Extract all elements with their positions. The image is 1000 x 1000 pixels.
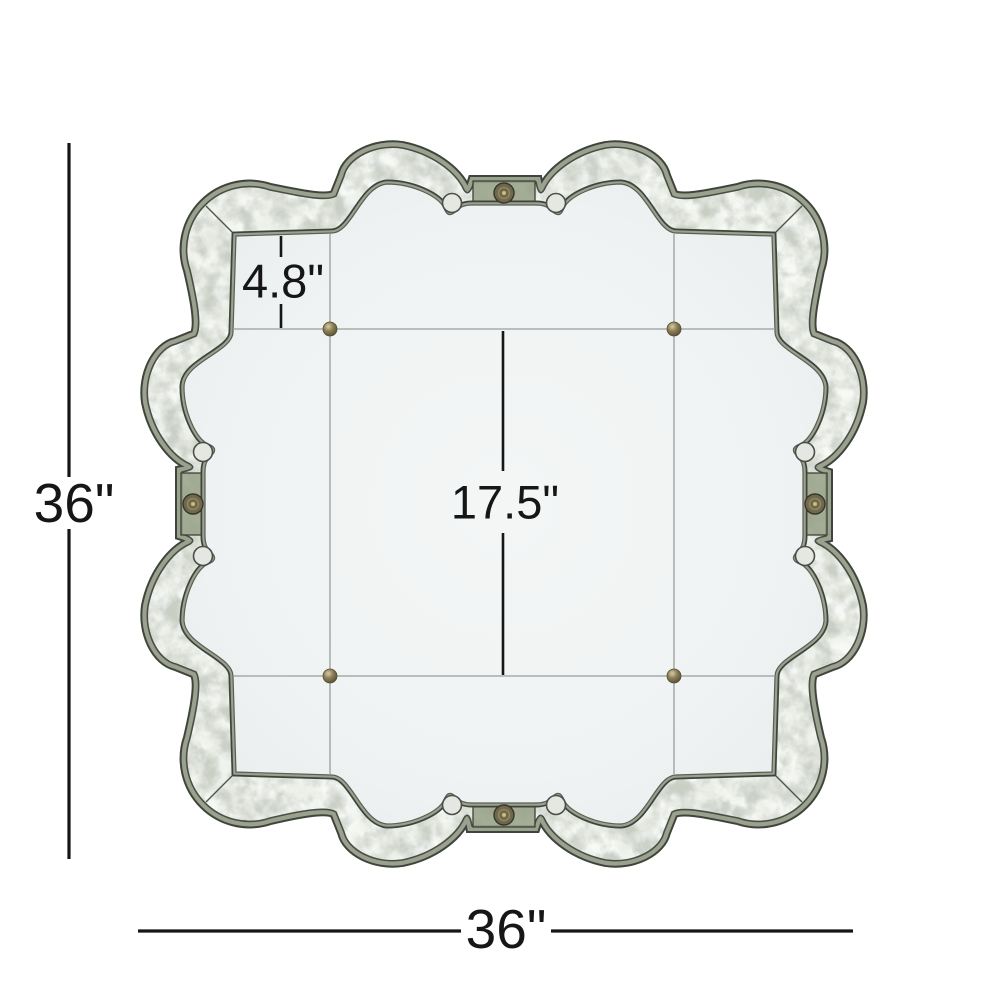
rosette-right	[805, 494, 825, 514]
width-dimension-label: 36"	[466, 898, 547, 960]
height-dimension-label: 36"	[34, 472, 115, 534]
rosette-left	[183, 494, 203, 514]
rosette-bottom	[494, 805, 514, 825]
border-panel-dimension-label: 4.8"	[242, 255, 324, 308]
mirror-illustration: 17.5" 4.8" 36" 36"	[0, 0, 1000, 1000]
mirror-dimension-diagram: 17.5" 4.8" 36" 36"	[0, 0, 1000, 1000]
height-dimension: 36"	[34, 143, 115, 859]
center-panel-dimension-label: 17.5"	[451, 476, 559, 529]
width-dimension: 36"	[138, 898, 853, 960]
rosette-top	[494, 183, 514, 203]
